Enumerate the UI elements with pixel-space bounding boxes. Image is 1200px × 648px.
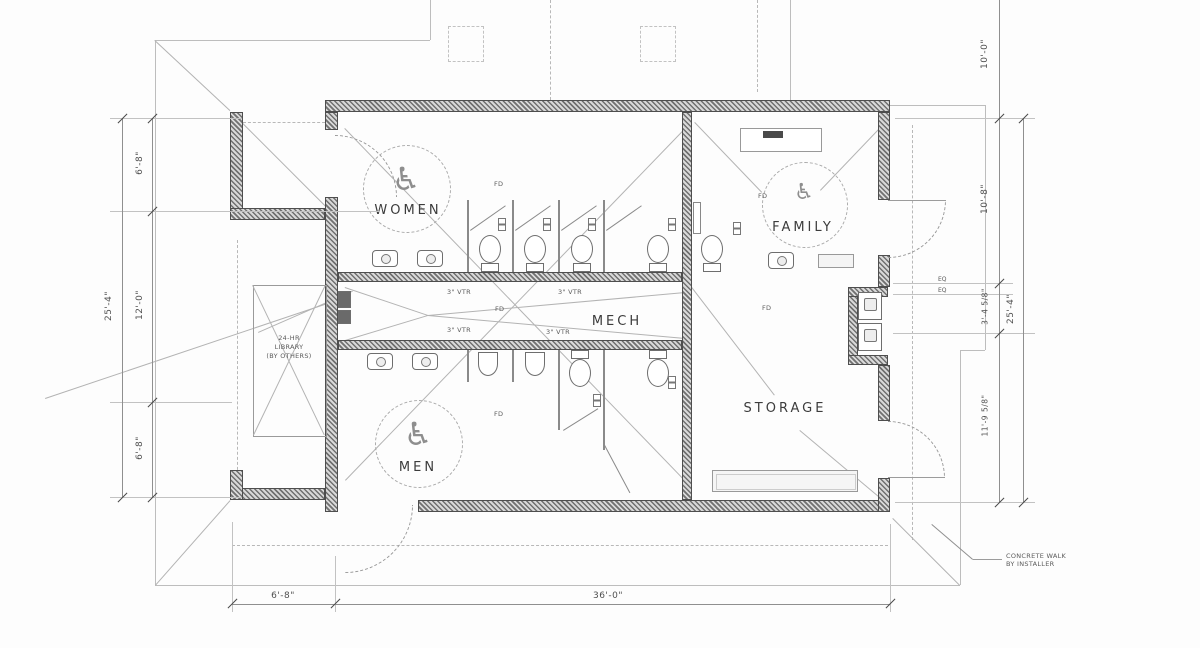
sink-basin <box>426 254 436 264</box>
roof-hip-top-left <box>154 40 230 111</box>
vtr-label: 3" VTR <box>447 288 471 296</box>
changing-table-label <box>763 131 783 138</box>
sink-basin <box>381 254 391 264</box>
wall-right-upper <box>878 112 890 200</box>
vtr-label: 3" VTR <box>558 288 582 296</box>
walk-outline-top <box>155 40 430 41</box>
grab-bar <box>668 376 676 389</box>
counter <box>818 254 854 268</box>
grab-bar <box>733 222 741 235</box>
roof-line-dashed <box>757 0 758 92</box>
wall-dispenser <box>693 202 701 234</box>
wall-mech-men <box>338 340 682 350</box>
toilet-bowl <box>569 359 591 387</box>
toilet-tank <box>526 263 544 272</box>
wheelchair-icon: ♿ <box>398 418 438 450</box>
walk-outline-left <box>155 40 156 585</box>
walk-outline-canopy-right <box>790 0 791 105</box>
stall-partition <box>558 200 560 272</box>
walk-callout-line2: BY INSTALLER <box>1006 560 1054 568</box>
wall-right-bottom <box>878 478 890 512</box>
toilet-tank <box>481 263 499 272</box>
dimension-line-right-segments <box>999 0 1000 502</box>
grab-bar <box>593 394 601 407</box>
dim-right-seg4: 11'-9 5/8" <box>981 384 990 448</box>
extension-line <box>895 118 1035 119</box>
toilet-bowl <box>524 235 546 263</box>
walk-callout-leader-diag <box>931 524 973 560</box>
toilet-bowl <box>647 359 669 387</box>
stall-partition <box>558 350 560 430</box>
walk-outline-step <box>960 350 985 351</box>
mech-equipment <box>338 310 351 324</box>
toilet-tank <box>571 350 589 359</box>
sink-basin <box>376 357 386 367</box>
wall-left-stub <box>325 112 338 130</box>
wall-bottom <box>418 500 890 512</box>
dimension-line-right-overall <box>1023 118 1024 502</box>
stall-partition <box>603 200 605 272</box>
roof-centerline <box>550 0 551 100</box>
floor-plan-canvas: ♿ WOMEN FD ♿ FAMILY FD MECH 3" VTR 3" VT… <box>0 0 1200 648</box>
dim-right-overall: 25'-4" <box>1006 279 1016 339</box>
wall-right-mid <box>878 255 890 287</box>
room-label-mech: MECH <box>577 314 657 329</box>
fountain-basin <box>864 298 877 311</box>
toilet-tank <box>573 263 591 272</box>
roof-hip-bottom-right <box>892 518 960 586</box>
wall-alcove-top-vertical <box>230 112 243 220</box>
toilet-bowl <box>479 235 501 263</box>
urinal <box>525 352 545 376</box>
dim-bottom-seg2: 36'-0" <box>578 591 638 601</box>
grab-bar <box>588 218 596 231</box>
storage-door-leaf <box>888 477 945 478</box>
walk-callout-line1: CONCRETE WALK <box>1006 552 1066 560</box>
roof-curb-right <box>640 26 676 62</box>
family-turning-circle <box>762 162 848 248</box>
walk-outline-bottom <box>155 585 960 586</box>
toilet-tank <box>649 350 667 359</box>
walk-outline-canopy-left <box>430 0 431 40</box>
sink-basin <box>421 357 431 367</box>
extension-line <box>110 402 232 403</box>
dim-left-overall: 25'-4" <box>104 276 114 336</box>
dimension-line-left-overall <box>122 118 123 497</box>
dimension-line-left-segments <box>152 118 153 497</box>
dim-left-seg1: 6'-8" <box>135 133 145 193</box>
wall-alcove-bottom-vertical <box>230 470 243 500</box>
stall-partition <box>603 350 605 450</box>
wall-interior-vertical <box>682 112 692 500</box>
extension-line <box>890 524 891 612</box>
urinal <box>478 352 498 376</box>
toilet-bowl <box>701 235 723 263</box>
storage-door-swing <box>888 421 945 478</box>
floor-drain-label: FD <box>495 305 504 313</box>
overhang-dashed-top <box>243 122 330 123</box>
stall-partition <box>512 200 514 272</box>
grab-bar <box>543 218 551 231</box>
roof-cricket-a <box>345 287 429 316</box>
floor-drain-label: FD <box>494 180 503 188</box>
wall-fountain-niche-back <box>848 287 858 365</box>
dim-left-seg2: 12'-0" <box>135 275 145 335</box>
stall-partition <box>467 200 469 272</box>
dim-left-seg3: 6'-8" <box>135 418 145 478</box>
wheelchair-icon: ♿ <box>790 182 818 204</box>
floor-drain-label: FD <box>494 410 503 418</box>
wall-top <box>325 100 890 112</box>
library-label-line2: LIBRARY <box>254 343 324 351</box>
dim-bottom-seg1: 6'-8" <box>253 591 313 601</box>
toilet-tank <box>649 263 667 272</box>
floor-drain-label: FD <box>758 192 767 200</box>
toilet-bowl <box>647 235 669 263</box>
storage-shelf-inner <box>716 474 856 490</box>
extension-line <box>110 497 242 498</box>
roof-hip-bottom-left <box>155 500 230 585</box>
eq-label: EQ <box>938 276 947 283</box>
extension-line <box>893 283 1013 284</box>
wheelchair-icon: ♿ <box>386 163 426 195</box>
room-label-family: FAMILY <box>763 220 843 235</box>
wall-right-lower <box>878 365 890 421</box>
grab-bar <box>668 218 676 231</box>
dimension-line-bottom <box>232 604 890 605</box>
dim-right-seg1: 10'-0" <box>980 24 990 84</box>
roof-cricket-b <box>345 315 429 341</box>
toilet-tank <box>703 263 721 272</box>
extension-line <box>232 522 233 612</box>
family-door-swing <box>888 200 946 258</box>
room-label-storage: STORAGE <box>725 401 845 416</box>
wall-fountain-niche-bottom <box>848 355 888 365</box>
mech-equipment <box>338 291 351 308</box>
room-label-men: MEN <box>388 460 448 475</box>
dim-right-seg3: 3'-4 5/8" <box>981 275 990 339</box>
sink-basin <box>777 256 787 266</box>
fountain-basin <box>864 329 877 342</box>
toilet-bowl <box>571 235 593 263</box>
library-label-line3: (BY OTHERS) <box>254 352 324 360</box>
extension-line <box>895 502 1035 503</box>
urinal-screen <box>467 350 469 382</box>
stall-door <box>604 445 630 493</box>
men-door-swing <box>345 505 413 573</box>
wall-women-mech <box>338 272 682 282</box>
stall-door <box>606 205 642 230</box>
roof-curb-left <box>448 26 484 62</box>
roof-valley-top-left <box>231 112 326 207</box>
vtr-label: 3" VTR <box>447 326 471 334</box>
grab-bar <box>498 218 506 231</box>
floor-drain-label: FD <box>762 304 771 312</box>
wall-alcove-bottom-horizontal <box>230 488 325 500</box>
vtr-label: 3" VTR <box>546 328 570 336</box>
family-door-leaf <box>888 200 946 201</box>
eq-label: EQ <box>938 287 947 294</box>
urinal-screen <box>512 350 514 382</box>
wall-alcove-top-horizontal <box>230 208 325 220</box>
dim-right-seg2: 10'-8" <box>980 169 990 229</box>
room-label-women: WOMEN <box>368 203 448 218</box>
walk-callout-leader <box>973 559 1002 560</box>
library-label-line1: 24-HR <box>254 334 324 342</box>
overhang-dashed-bottom <box>232 545 888 546</box>
stall-door <box>563 408 598 431</box>
extension-line <box>893 294 1013 295</box>
overhang-dashed-left <box>237 240 238 480</box>
extension-line <box>110 118 242 119</box>
